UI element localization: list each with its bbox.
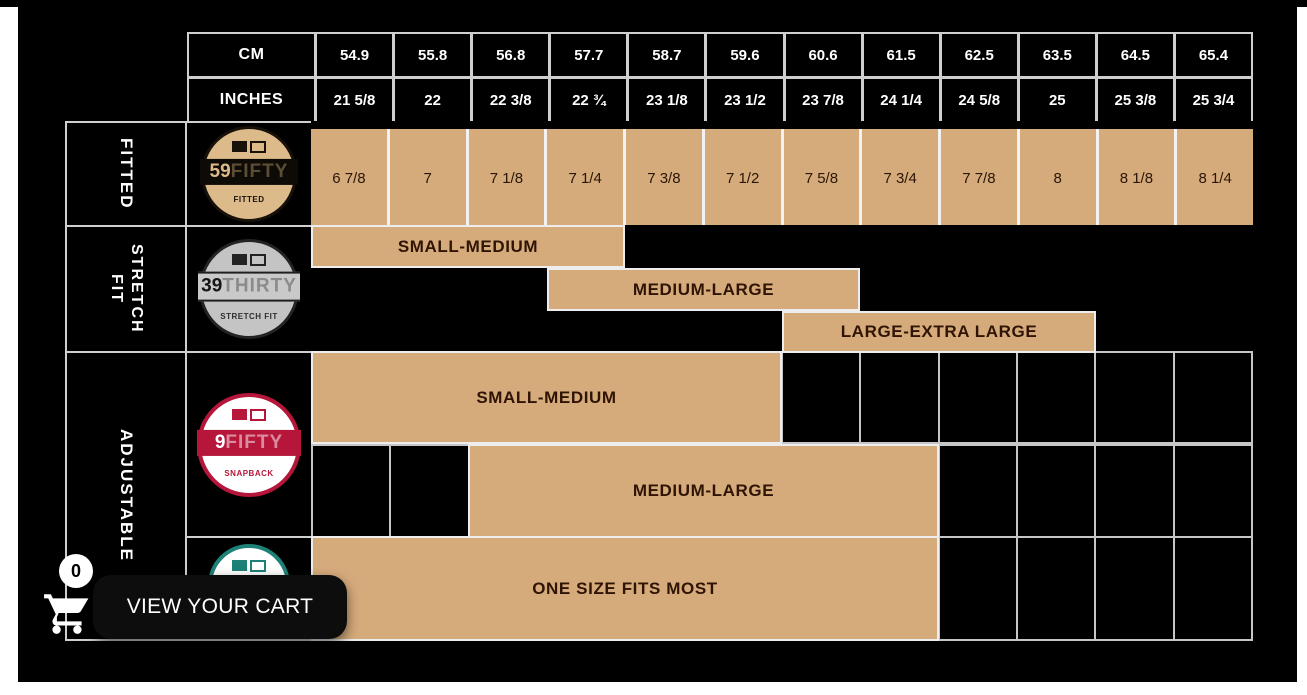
empty-cell xyxy=(391,446,467,536)
logo-name: FIFTY xyxy=(231,161,289,183)
flag-outline-box-icon xyxy=(250,141,266,153)
flag-box-icon xyxy=(232,409,247,420)
empty-cell xyxy=(940,446,1016,536)
cm-value-cell: 62.5 xyxy=(942,34,1017,76)
cm-value-cell: 55.8 xyxy=(395,34,470,76)
fitted-size-cell: 7 3/8 xyxy=(626,129,702,227)
empty-cell xyxy=(1096,353,1172,442)
logo-name: FIFTY xyxy=(225,431,283,453)
inches-header-label: INCHES xyxy=(189,79,314,121)
cm-value-cell: 61.5 xyxy=(864,34,939,76)
logo-subtext: SNAPBACK xyxy=(201,469,297,478)
view-cart-button[interactable]: VIEW YOUR CART xyxy=(93,575,347,639)
inches-value-cell: 23 1/8 xyxy=(629,79,704,121)
size-chart-table: CM54.955.856.857.758.759.660.661.562.563… xyxy=(65,32,1253,641)
logo-cell-59fifty: 59 FIFTY FITTED xyxy=(185,121,313,227)
size-range-row: SMALL-MEDIUM xyxy=(311,351,1253,444)
empty-cell xyxy=(313,446,389,536)
59fifty-band: 59 FIFTY xyxy=(200,159,298,185)
inches-value-cell: 25 3/4 xyxy=(1176,79,1251,121)
size-range-row: MEDIUM-LARGE xyxy=(311,268,1253,311)
one-size-ranges: ONE SIZE FITS MOST xyxy=(311,536,1253,641)
flag-box-icon xyxy=(232,141,247,152)
size-range-bar: MEDIUM-LARGE xyxy=(547,268,861,311)
shopping-cart-icon[interactable] xyxy=(42,588,92,638)
empty-cell xyxy=(1018,446,1094,536)
flag-outline-box-icon xyxy=(250,409,266,421)
cm-value-cell: 60.6 xyxy=(786,34,861,76)
empty-cell xyxy=(1018,538,1094,639)
cart-count-badge: 0 xyxy=(59,554,93,588)
59fifty-logo: 59 FIFTY FITTED xyxy=(201,126,297,222)
inches-value-cell: 23 7/8 xyxy=(786,79,861,121)
empty-cell xyxy=(1175,446,1251,536)
empty-cell xyxy=(783,353,859,442)
9fifty-logo: 9 FIFTY SNAPBACK xyxy=(197,393,301,497)
stretch-fit-ranges: SMALL-MEDIUMMEDIUM-LARGELARGE-EXTRA LARG… xyxy=(311,225,1253,353)
new-era-flag-icon xyxy=(202,254,296,266)
logo-prefix: 9 xyxy=(215,431,226,453)
size-chart-page: CM54.955.856.857.758.759.660.661.562.563… xyxy=(0,0,1307,695)
39thirty-band: 39 THIRTY xyxy=(198,272,300,302)
empty-cell xyxy=(1175,353,1251,442)
cm-value-cell: 58.7 xyxy=(629,34,704,76)
inches-value-cell: 25 xyxy=(1020,79,1095,121)
fitted-size-cell: 6 7/8 xyxy=(311,129,387,227)
logo-subtext: FITTED xyxy=(204,195,294,204)
new-era-flag-icon xyxy=(201,409,297,421)
logo-cell-39thirty: 39 THIRTY STRETCH FIT xyxy=(185,225,313,353)
flag-box-icon xyxy=(232,560,247,571)
fitted-sizes-row: 6 7/877 1/87 1/47 3/87 1/27 5/87 3/47 7/… xyxy=(311,129,1253,227)
logo-name: THIRTY xyxy=(222,276,297,298)
inches-value-cell: 24 1/4 xyxy=(864,79,939,121)
inches-value-cell: 23 1/2 xyxy=(707,79,782,121)
cm-value-cell: 64.5 xyxy=(1098,34,1173,76)
cm-value-cell: 63.5 xyxy=(1020,34,1095,76)
inches-value-cell: 22 3/8 xyxy=(473,79,548,121)
flag-outline-box-icon xyxy=(250,254,266,266)
inches-value-cell: 25 3/8 xyxy=(1098,79,1173,121)
new-era-flag-icon xyxy=(212,560,286,572)
size-range-row: MEDIUM-LARGE xyxy=(311,444,1253,538)
cm-value-cell: 54.9 xyxy=(317,34,392,76)
empty-cell xyxy=(1096,446,1172,536)
empty-cell xyxy=(861,353,937,442)
fitted-size-cell: 7 1/2 xyxy=(705,129,781,227)
9fifty-band: 9 FIFTY xyxy=(197,429,301,455)
size-range-row: LARGE-EXTRA LARGE xyxy=(311,311,1253,353)
snapback-subsection: 9 FIFTY SNAPBACK SMALL-MEDIUMMEDIUM-LARG… xyxy=(185,351,1253,538)
inches-value-cell: 24 5/8 xyxy=(942,79,1017,121)
empty-cell xyxy=(940,538,1016,639)
section-stretch-fit: STRETCH FIT 39 THIRTY STRETCH FIT xyxy=(65,225,1253,353)
section-label-stretch-fit: STRETCH FIT xyxy=(65,225,187,353)
section-label-fitted: FITTED xyxy=(65,121,187,227)
size-range-bar: SMALL-MEDIUM xyxy=(311,351,782,444)
empty-cell xyxy=(1018,353,1094,442)
cm-value-cell: 59.6 xyxy=(707,34,782,76)
fitted-size-cell: 7 1/8 xyxy=(469,129,545,227)
logo-prefix: 39 xyxy=(201,276,222,298)
section-fitted: FITTED 59 FIFTY FITTED xyxy=(65,121,1253,227)
fitted-size-cell: 7 1/4 xyxy=(547,129,623,227)
size-range-bar: LARGE-EXTRA LARGE xyxy=(782,311,1096,353)
fitted-data-area: 6 7/877 1/87 1/47 3/87 1/27 5/87 3/47 7/… xyxy=(311,121,1253,227)
inches-value-cell: 22 xyxy=(395,79,470,121)
empty-cell xyxy=(940,353,1016,442)
logo-cell-9fifty: 9 FIFTY SNAPBACK xyxy=(185,351,313,538)
inches-value-cell: 21 5/8 xyxy=(317,79,392,121)
size-range-bar: SMALL-MEDIUM xyxy=(311,225,625,268)
fitted-size-cell: 8 1/8 xyxy=(1099,129,1175,227)
logo-subtext: STRETCH FIT xyxy=(202,312,296,321)
measurement-header: CM54.955.856.857.758.759.660.661.562.563… xyxy=(187,32,1253,123)
adjustable-label: ADJUSTABLE xyxy=(116,429,136,562)
fitted-size-cell: 7 5/8 xyxy=(784,129,860,227)
inches-value-cell: 22 ¾ xyxy=(551,79,626,121)
flag-outline-box-icon xyxy=(250,560,266,572)
cm-value-cell: 65.4 xyxy=(1176,34,1251,76)
empty-cell xyxy=(1175,538,1251,639)
snapback-ranges: SMALL-MEDIUMMEDIUM-LARGE xyxy=(311,351,1253,538)
size-range-row: SMALL-MEDIUM xyxy=(311,225,1253,268)
logo-prefix: 59 xyxy=(210,161,231,183)
empty-cell xyxy=(1096,538,1172,639)
new-era-flag-icon xyxy=(204,141,294,153)
cm-header-label: CM xyxy=(189,34,314,76)
flag-box-icon xyxy=(232,254,247,265)
39thirty-logo: 39 THIRTY STRETCH FIT xyxy=(199,239,299,339)
fitted-label: FITTED xyxy=(116,138,136,210)
fitted-size-cell: 7 3/4 xyxy=(862,129,938,227)
fitted-size-cell: 7 xyxy=(390,129,466,227)
fitted-size-cell: 7 7/8 xyxy=(941,129,1017,227)
size-range-row: ONE SIZE FITS MOST xyxy=(311,536,1253,641)
size-range-bar: ONE SIZE FITS MOST xyxy=(311,536,939,641)
fitted-size-cell: 8 xyxy=(1020,129,1096,227)
cm-value-cell: 56.8 xyxy=(473,34,548,76)
size-range-bar: MEDIUM-LARGE xyxy=(468,444,939,538)
cm-value-cell: 57.7 xyxy=(551,34,626,76)
fitted-size-cell: 8 1/4 xyxy=(1177,129,1253,227)
top-black-bar xyxy=(0,0,1307,7)
stretch-fit-label: STRETCH FIT xyxy=(106,237,146,341)
